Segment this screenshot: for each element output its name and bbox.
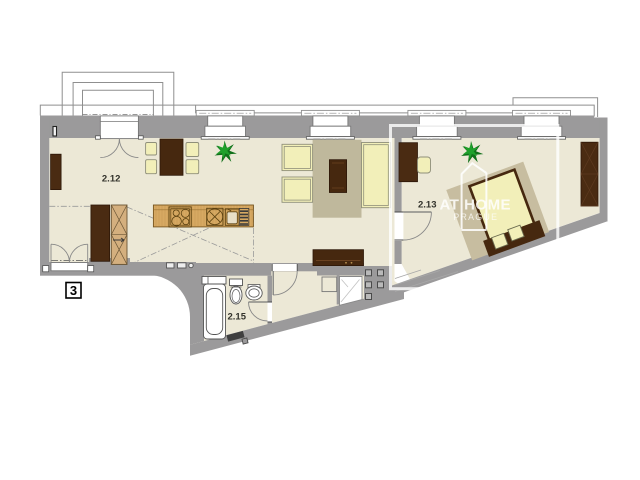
svg-text:AT HOME: AT HOME	[440, 197, 512, 214]
svg-text:PRAGUE: PRAGUE	[453, 212, 498, 222]
svg-text:2.12: 2.12	[102, 174, 121, 185]
svg-text:2.15: 2.15	[228, 312, 247, 323]
svg-text:3: 3	[70, 283, 77, 298]
svg-text:2.13: 2.13	[418, 200, 437, 211]
